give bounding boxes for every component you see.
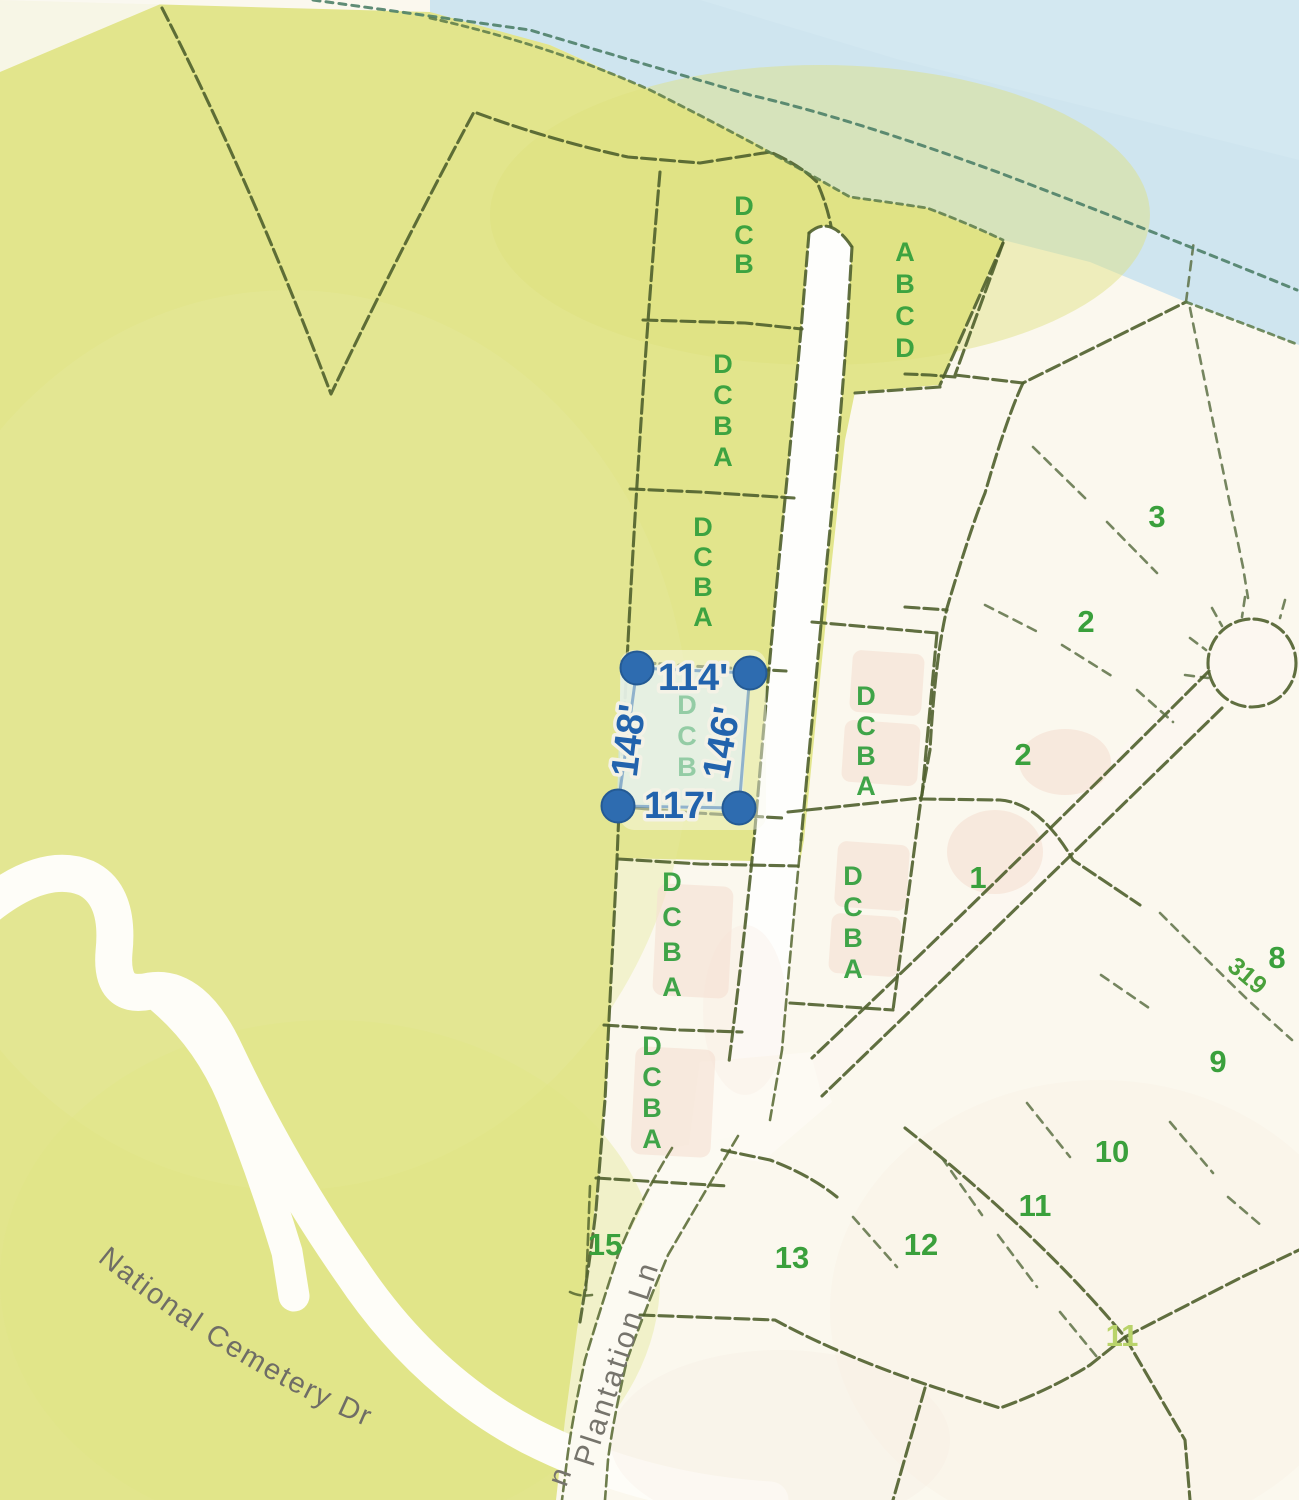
parcel-strip-3[interactable] [622, 489, 794, 671]
measurement-left[interactable]: 148' [604, 702, 655, 779]
parcel-strip-2[interactable] [630, 320, 802, 498]
parcel-map-canvas: DCB DCBA DCBA DCB DCBA DCBA DCBA DCBA AB… [0, 0, 1299, 1500]
plat-map-screenshot: DCB DCBA DCBA DCB DCBA DCBA DCBA DCBA AB… [0, 0, 1299, 1500]
lot-number-11-faint: 11 [1106, 1318, 1139, 1353]
parcel-strip-6[interactable] [596, 1026, 742, 1186]
selected-parcel-letters: DCB [677, 690, 697, 782]
